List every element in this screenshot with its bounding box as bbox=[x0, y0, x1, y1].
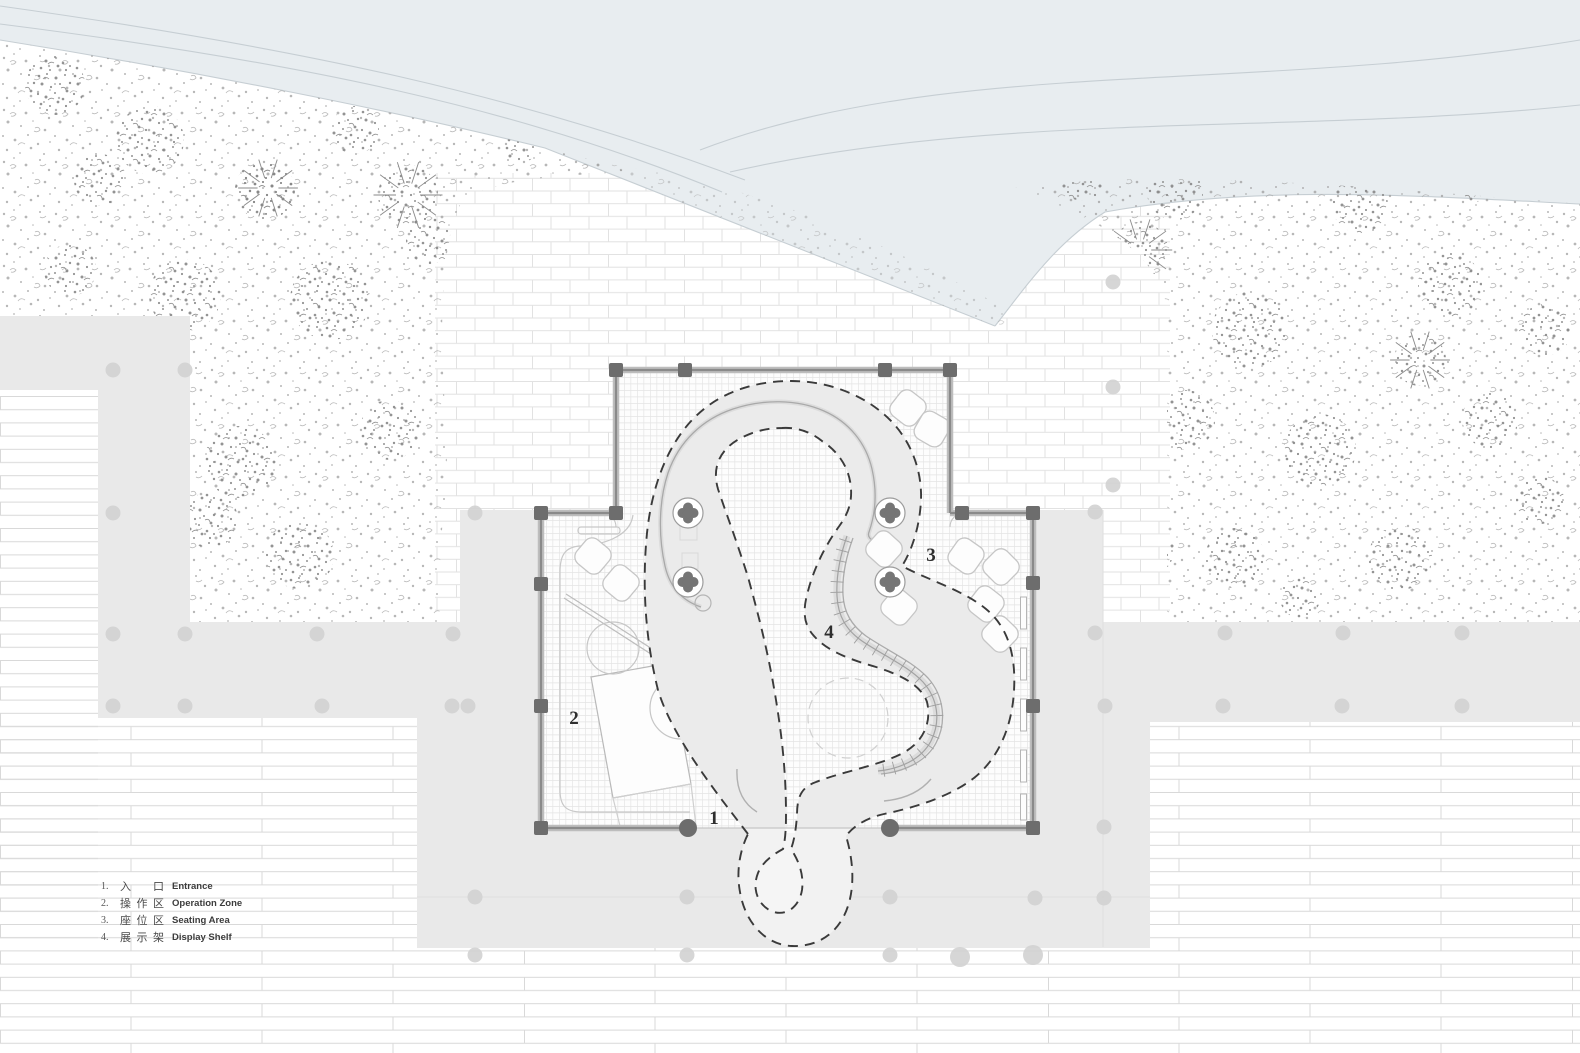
legend-label-zh: 座位区 bbox=[120, 913, 164, 927]
legend-num: 2. bbox=[101, 898, 109, 909]
marker-display-shelf: 4 bbox=[824, 622, 834, 643]
legend-label-zh: 展示架 bbox=[120, 931, 164, 944]
legend-num: 4. bbox=[101, 932, 109, 943]
floor-plan-canvas: 1 2 3 4 1. 入口 Entrance 2. 操作区 Operation … bbox=[0, 0, 1580, 1053]
site-plan-page: 1 2 3 4 1. 入口 Entrance 2. 操作区 Operation … bbox=[0, 0, 1580, 1053]
marker-seating-area: 3 bbox=[926, 545, 936, 566]
legend-label-en: Operation Zone bbox=[172, 898, 242, 909]
legend-num: 3. bbox=[101, 915, 109, 926]
legend-label-en: Display Shelf bbox=[172, 932, 232, 943]
legend-label-zh: 操作区 bbox=[120, 896, 164, 910]
legend-row: 2. 操作区 Operation Zone bbox=[101, 896, 242, 910]
marker-operation-zone: 2 bbox=[569, 708, 579, 729]
legend-num: 1. bbox=[101, 881, 109, 892]
legend-label-en: Seating Area bbox=[172, 915, 230, 926]
marker-entrance: 1 bbox=[709, 808, 719, 829]
legend-label-en: Entrance bbox=[172, 881, 213, 892]
